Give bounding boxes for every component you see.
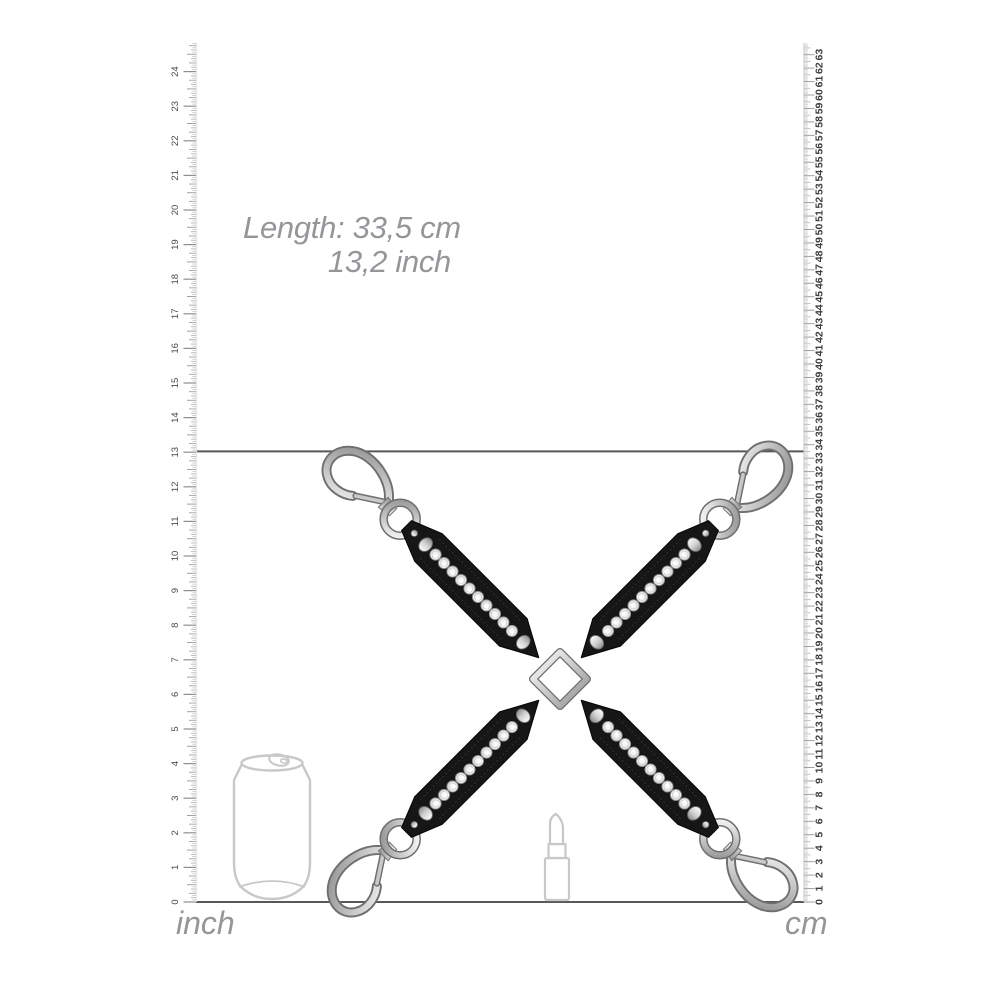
svg-text:26: 26 xyxy=(814,546,826,558)
svg-text:40: 40 xyxy=(814,358,826,370)
svg-text:2: 2 xyxy=(814,872,826,878)
svg-text:4: 4 xyxy=(814,845,826,851)
svg-text:29: 29 xyxy=(814,506,826,518)
svg-text:43: 43 xyxy=(814,318,826,330)
svg-text:50: 50 xyxy=(814,224,826,236)
svg-text:53: 53 xyxy=(814,183,826,195)
svg-text:36: 36 xyxy=(814,412,826,424)
svg-text:51: 51 xyxy=(814,210,826,222)
svg-text:3: 3 xyxy=(814,859,826,865)
svg-text:57: 57 xyxy=(814,129,826,141)
svg-text:6: 6 xyxy=(814,818,826,824)
svg-text:37: 37 xyxy=(814,398,826,410)
ruler-unit-label-inch: inch xyxy=(176,905,235,942)
svg-text:63: 63 xyxy=(814,49,826,61)
svg-text:19: 19 xyxy=(814,640,826,652)
svg-text:20: 20 xyxy=(170,205,181,216)
svg-text:4: 4 xyxy=(170,761,181,766)
svg-text:5: 5 xyxy=(170,726,181,731)
ruler-cm: 0123456789101112131415161718192021222324… xyxy=(804,43,826,905)
svg-text:15: 15 xyxy=(170,378,181,389)
svg-text:15: 15 xyxy=(814,694,826,706)
svg-text:22: 22 xyxy=(814,600,826,612)
svg-text:16: 16 xyxy=(170,343,181,354)
svg-text:8: 8 xyxy=(814,791,826,797)
svg-text:52: 52 xyxy=(814,197,826,209)
svg-text:55: 55 xyxy=(814,156,826,168)
svg-text:56: 56 xyxy=(814,143,826,155)
svg-text:7: 7 xyxy=(814,805,826,811)
svg-text:9: 9 xyxy=(170,588,181,593)
svg-text:17: 17 xyxy=(814,667,826,679)
soda-can-outline xyxy=(234,753,310,899)
svg-text:12: 12 xyxy=(814,735,826,747)
svg-text:1: 1 xyxy=(170,865,181,870)
svg-text:58: 58 xyxy=(814,116,826,128)
strap-arm xyxy=(318,439,554,675)
svg-text:11: 11 xyxy=(170,516,181,526)
svg-text:21: 21 xyxy=(170,170,181,181)
svg-text:19: 19 xyxy=(170,239,181,250)
svg-text:46: 46 xyxy=(814,277,826,289)
svg-text:30: 30 xyxy=(814,493,826,505)
scene-graphics: 0123456789101112131415161718192021222324… xyxy=(0,0,1000,1000)
center-square-ring xyxy=(533,652,587,706)
svg-text:44: 44 xyxy=(814,304,826,316)
svg-text:14: 14 xyxy=(814,708,826,720)
svg-text:2: 2 xyxy=(170,830,181,835)
svg-text:17: 17 xyxy=(170,309,181,320)
lipstick-outline xyxy=(545,814,569,900)
strap-arm xyxy=(320,685,556,921)
svg-text:41: 41 xyxy=(814,345,826,357)
svg-text:20: 20 xyxy=(814,627,826,639)
svg-text:10: 10 xyxy=(814,762,826,774)
svg-text:23: 23 xyxy=(170,101,181,112)
svg-text:49: 49 xyxy=(814,237,826,249)
svg-text:61: 61 xyxy=(814,76,826,88)
svg-text:18: 18 xyxy=(170,274,181,285)
svg-text:47: 47 xyxy=(814,264,826,276)
svg-text:23: 23 xyxy=(814,587,826,599)
product-scale-image: 0123456789101112131415161718192021222324… xyxy=(0,0,1000,1000)
strap-arm xyxy=(566,683,802,919)
length-annotation-inch: 13,2 inch xyxy=(243,245,451,279)
svg-text:54: 54 xyxy=(814,170,826,182)
svg-text:27: 27 xyxy=(814,533,826,545)
svg-text:16: 16 xyxy=(814,681,826,693)
svg-text:48: 48 xyxy=(814,250,826,262)
svg-text:9: 9 xyxy=(814,778,826,784)
svg-text:39: 39 xyxy=(814,371,826,383)
svg-text:18: 18 xyxy=(814,654,826,666)
svg-text:3: 3 xyxy=(170,796,181,801)
svg-text:28: 28 xyxy=(814,519,826,531)
svg-text:32: 32 xyxy=(814,466,826,478)
svg-text:59: 59 xyxy=(814,102,826,114)
svg-text:60: 60 xyxy=(814,89,826,101)
svg-text:11: 11 xyxy=(814,748,826,759)
ruler-inch: 0123456789101112131415161718192021222324 xyxy=(170,43,197,905)
svg-text:7: 7 xyxy=(170,657,181,662)
svg-text:34: 34 xyxy=(814,439,826,451)
svg-text:45: 45 xyxy=(814,291,826,303)
svg-text:12: 12 xyxy=(170,482,181,493)
svg-text:14: 14 xyxy=(170,412,181,423)
svg-text:22: 22 xyxy=(170,136,181,147)
svg-text:21: 21 xyxy=(814,614,826,626)
length-annotation-cm: Length: 33,5 cm xyxy=(243,211,451,245)
svg-text:8: 8 xyxy=(170,623,181,628)
svg-text:33: 33 xyxy=(814,452,826,464)
strap-arm xyxy=(564,437,800,673)
svg-text:0: 0 xyxy=(170,899,181,904)
svg-text:25: 25 xyxy=(814,560,826,572)
length-annotation: Length: 33,5 cm 13,2 inch xyxy=(243,211,451,279)
svg-text:38: 38 xyxy=(814,385,826,397)
svg-text:62: 62 xyxy=(814,62,826,74)
svg-text:6: 6 xyxy=(170,692,181,697)
ruler-unit-label-cm: cm xyxy=(785,905,828,942)
svg-text:5: 5 xyxy=(814,832,826,838)
svg-text:13: 13 xyxy=(814,721,826,733)
svg-text:10: 10 xyxy=(170,551,181,562)
svg-text:24: 24 xyxy=(814,573,826,585)
svg-text:1: 1 xyxy=(814,885,826,891)
svg-text:13: 13 xyxy=(170,447,181,458)
svg-text:35: 35 xyxy=(814,425,826,437)
svg-text:31: 31 xyxy=(814,479,826,491)
svg-text:24: 24 xyxy=(170,66,181,77)
svg-text:42: 42 xyxy=(814,331,826,343)
